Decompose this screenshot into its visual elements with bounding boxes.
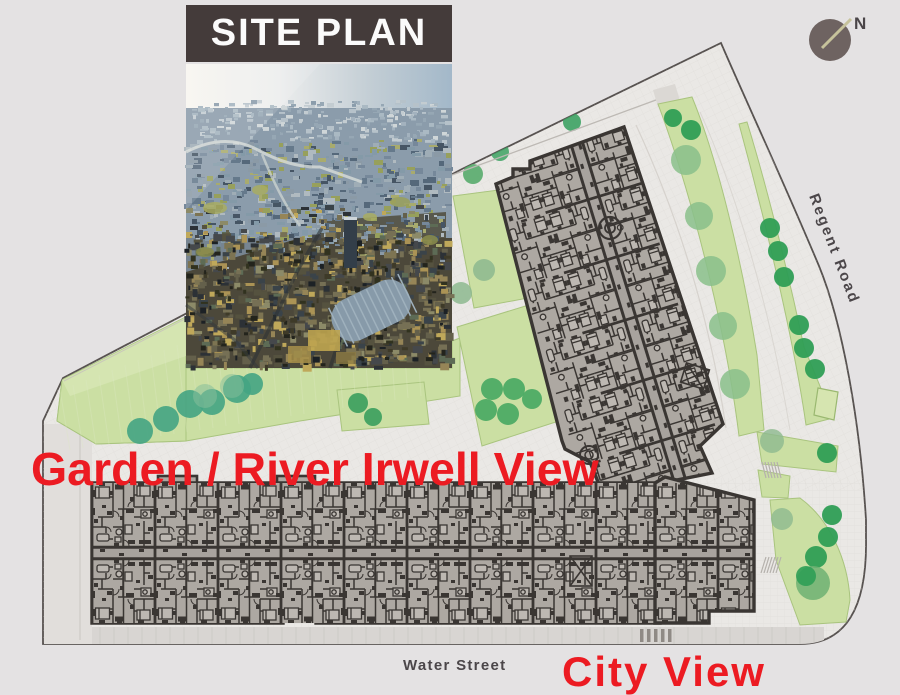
svg-text:Garden / River Irwell View: Garden / River Irwell View [31, 443, 600, 495]
svg-text:City View: City View [562, 648, 766, 695]
svg-text:N: N [854, 14, 866, 33]
svg-text:Water Street: Water Street [403, 657, 506, 674]
svg-text:SITE PLAN: SITE PLAN [211, 12, 427, 54]
